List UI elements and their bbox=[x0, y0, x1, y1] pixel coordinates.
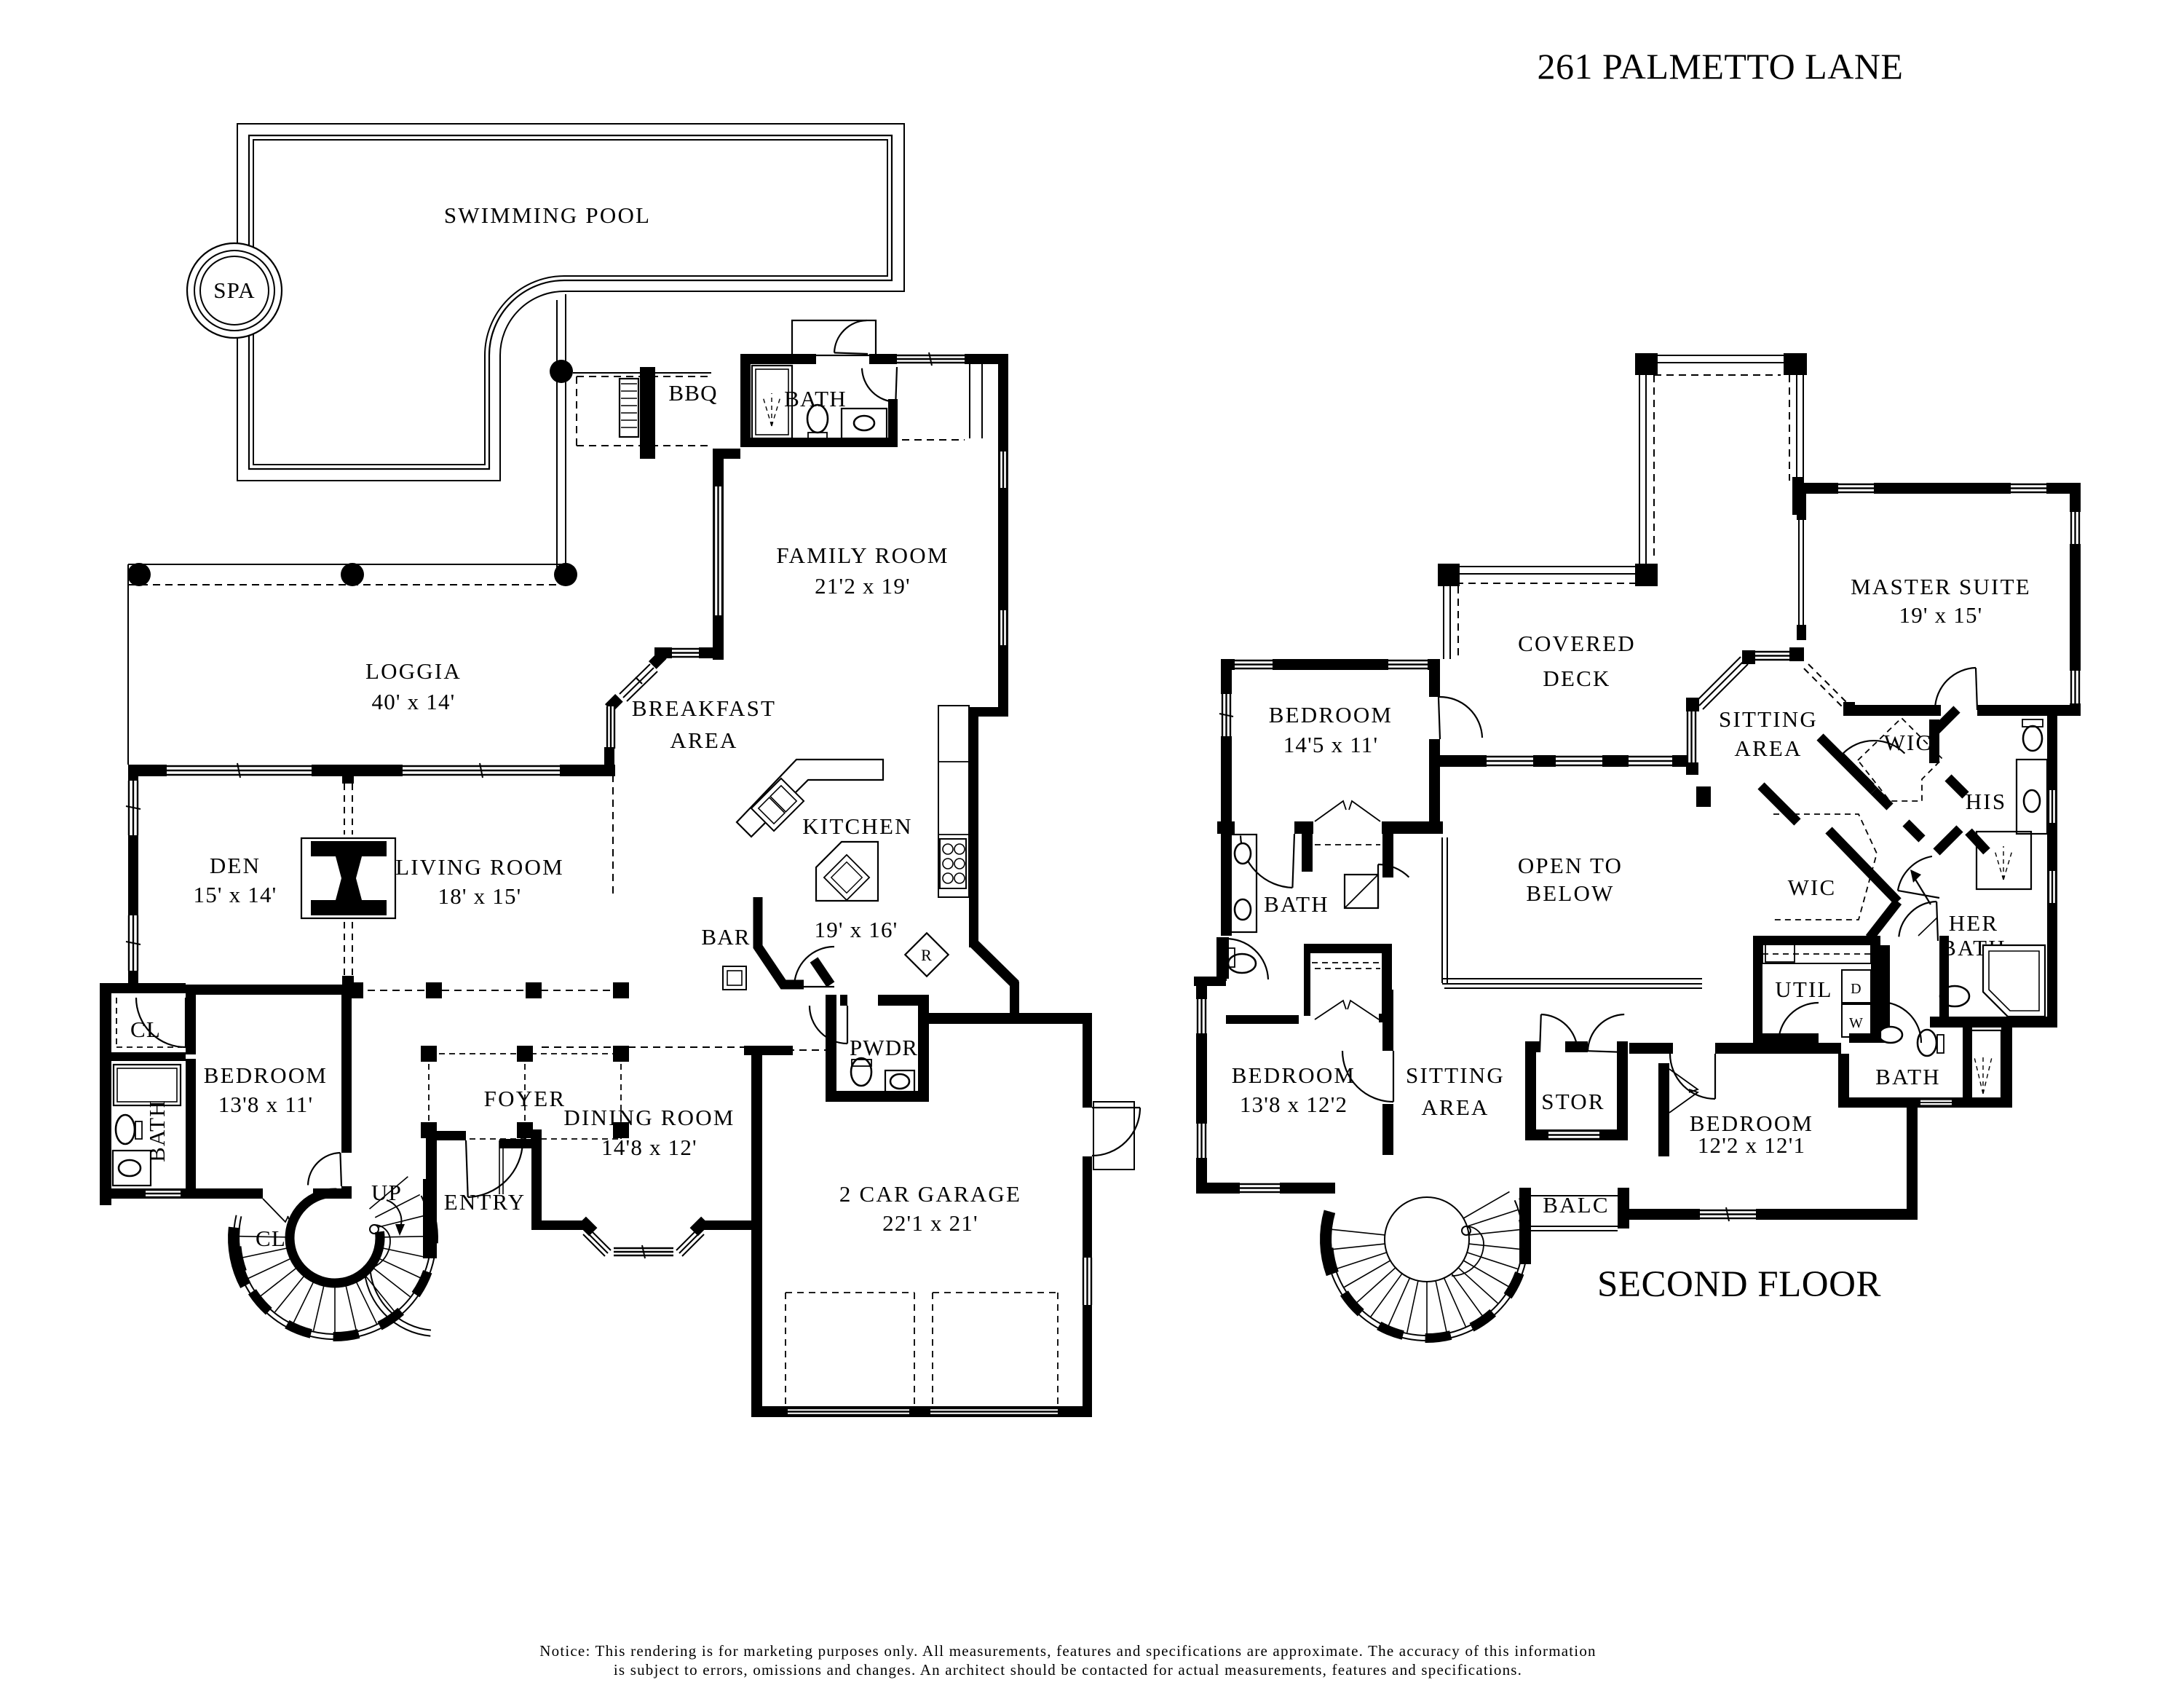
svg-text:BEDROOM: BEDROOM bbox=[1269, 702, 1393, 727]
svg-text:BATH: BATH bbox=[1264, 891, 1329, 917]
svg-text:13'8 x 11': 13'8 x 11' bbox=[218, 1092, 314, 1117]
svg-text:14'8 x 12': 14'8 x 12' bbox=[601, 1135, 697, 1160]
svg-text:D: D bbox=[1851, 981, 1862, 997]
svg-text:SITTING: SITTING bbox=[1719, 706, 1818, 732]
svg-text:MASTER SUITE: MASTER SUITE bbox=[1851, 574, 2031, 599]
svg-text:BATH: BATH bbox=[784, 386, 847, 411]
svg-text:UTIL: UTIL bbox=[1775, 977, 1832, 1002]
svg-text:UP: UP bbox=[371, 1180, 402, 1205]
svg-text:KITCHEN: KITCHEN bbox=[802, 813, 912, 839]
svg-text:DECK: DECK bbox=[1543, 666, 1610, 691]
svg-text:BBQ: BBQ bbox=[668, 380, 717, 406]
svg-text:FAMILY ROOM: FAMILY ROOM bbox=[776, 543, 949, 568]
svg-text:21'2 x 19': 21'2 x 19' bbox=[815, 573, 911, 599]
svg-text:FOYER: FOYER bbox=[484, 1086, 566, 1111]
svg-text:is subject to errors, omission: is subject to errors, omissions and chan… bbox=[614, 1661, 1522, 1679]
svg-text:19' x 15': 19' x 15' bbox=[1899, 602, 1983, 628]
svg-text:SITTING: SITTING bbox=[1406, 1062, 1505, 1088]
svg-text:WIC: WIC bbox=[1884, 730, 1933, 755]
svg-text:AREA: AREA bbox=[1734, 735, 1802, 761]
svg-text:AREA: AREA bbox=[670, 727, 737, 753]
svg-text:Notice: This rendering is for: Notice: This rendering is for marketing … bbox=[539, 1642, 1596, 1660]
svg-text:CL: CL bbox=[256, 1226, 286, 1251]
svg-text:SPA: SPA bbox=[213, 277, 256, 303]
svg-text:AREA: AREA bbox=[1421, 1095, 1489, 1120]
svg-text:ENTRY: ENTRY bbox=[444, 1189, 526, 1215]
svg-text:2 CAR GARAGE: 2 CAR GARAGE bbox=[839, 1181, 1021, 1207]
svg-text:DINING ROOM: DINING ROOM bbox=[563, 1105, 735, 1130]
svg-text:BAR: BAR bbox=[701, 924, 750, 950]
svg-text:22'1 x 21': 22'1 x 21' bbox=[882, 1210, 978, 1236]
svg-text:12'2 x 12'1: 12'2 x 12'1 bbox=[1698, 1132, 1805, 1158]
svg-text:18' x 15': 18' x 15' bbox=[438, 883, 522, 909]
svg-text:OPEN TO: OPEN TO bbox=[1518, 853, 1623, 878]
svg-text:PWDR: PWDR bbox=[850, 1035, 918, 1060]
svg-text:BATH: BATH bbox=[1875, 1064, 1941, 1089]
svg-text:LIVING ROOM: LIVING ROOM bbox=[395, 854, 564, 880]
svg-text:W: W bbox=[1849, 1015, 1864, 1031]
svg-text:13'8 x 12'2: 13'8 x 12'2 bbox=[1240, 1092, 1348, 1117]
svg-text:15' x 14': 15' x 14' bbox=[194, 882, 277, 907]
svg-text:DEN: DEN bbox=[210, 853, 261, 878]
svg-text:261 PALMETTO LANE: 261 PALMETTO LANE bbox=[1538, 46, 1904, 87]
svg-text:BREAKFAST: BREAKFAST bbox=[632, 695, 776, 721]
svg-text:BEDROOM: BEDROOM bbox=[1232, 1062, 1356, 1088]
svg-text:HER: HER bbox=[1949, 910, 1999, 936]
svg-text:STOR: STOR bbox=[1541, 1089, 1605, 1114]
svg-text:BALC: BALC bbox=[1543, 1192, 1609, 1218]
svg-text:LOGGIA: LOGGIA bbox=[365, 658, 462, 684]
svg-text:BATH: BATH bbox=[144, 1100, 170, 1162]
svg-text:COVERED: COVERED bbox=[1518, 631, 1636, 656]
svg-text:19' x 16': 19' x 16' bbox=[815, 917, 898, 942]
svg-text:14'5 x 11': 14'5 x 11' bbox=[1283, 732, 1379, 757]
svg-text:CL: CL bbox=[130, 1017, 161, 1042]
svg-text:HIS: HIS bbox=[1966, 789, 2007, 814]
svg-text:R: R bbox=[921, 946, 933, 964]
svg-text:BELOW: BELOW bbox=[1526, 880, 1614, 906]
svg-text:SECOND FLOOR: SECOND FLOOR bbox=[1597, 1264, 1881, 1305]
svg-text:SWIMMING POOL: SWIMMING POOL bbox=[444, 202, 651, 228]
svg-text:WIC: WIC bbox=[1788, 875, 1837, 900]
svg-text:BEDROOM: BEDROOM bbox=[204, 1062, 328, 1088]
svg-text:40' x 14': 40' x 14' bbox=[372, 689, 456, 714]
